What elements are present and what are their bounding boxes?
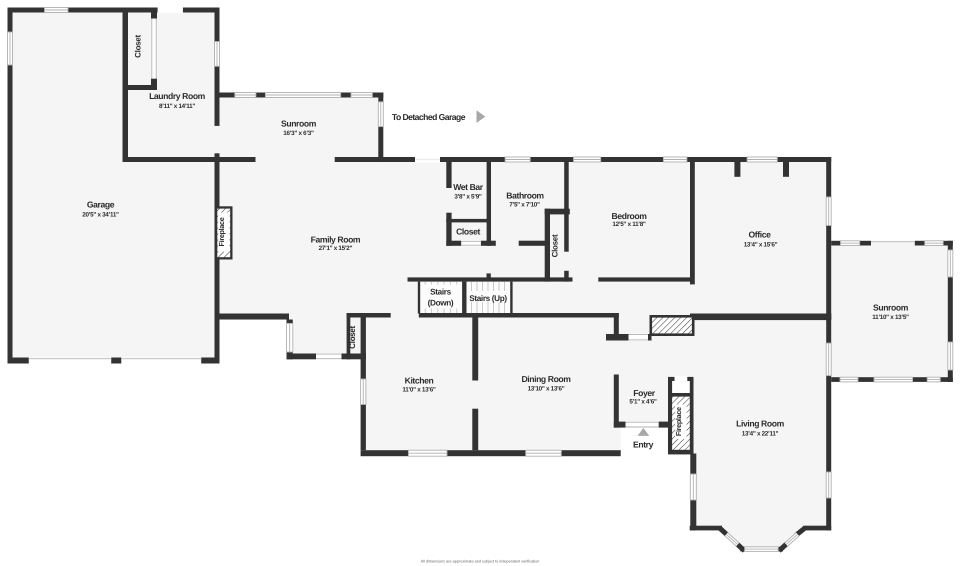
svg-text:13’4" x 22’11": 13’4" x 22’11"	[742, 430, 779, 437]
svg-text:Closet: Closet	[551, 234, 560, 257]
svg-text:5’1" x 4’6": 5’1" x 4’6"	[629, 399, 656, 406]
svg-text:8’11" x 14’11": 8’11" x 14’11"	[159, 103, 195, 110]
svg-text:13’4" x 15’6": 13’4" x 15’6"	[744, 242, 778, 249]
svg-text:Closet: Closet	[456, 227, 480, 237]
svg-text:Laundry Room: Laundry Room	[149, 91, 206, 101]
svg-text:To Detached Garage: To Detached Garage	[392, 112, 466, 122]
svg-text:Kitchen: Kitchen	[405, 375, 434, 385]
svg-text:Office: Office	[749, 229, 772, 239]
svg-text:13’10" x 13’6": 13’10" x 13’6"	[528, 385, 565, 392]
svg-text:(Down): (Down)	[428, 298, 454, 307]
svg-text:27’1" x 15’2": 27’1" x 15’2"	[319, 245, 353, 252]
svg-text:Wet Bar: Wet Bar	[453, 182, 484, 192]
svg-text:11’10" x 13’5": 11’10" x 13’5"	[872, 314, 909, 321]
svg-text:16’3" x 6’3": 16’3" x 6’3"	[283, 130, 314, 137]
svg-text:Living Room: Living Room	[736, 418, 784, 428]
svg-text:Fireplace: Fireplace	[217, 217, 226, 246]
svg-text:Dining Room: Dining Room	[521, 374, 571, 384]
svg-text:Fireplace: Fireplace	[674, 407, 683, 436]
svg-text:Closet: Closet	[348, 326, 357, 349]
svg-text:Foyer: Foyer	[633, 388, 655, 398]
svg-text:Stairs: Stairs	[430, 288, 451, 297]
svg-text:All dimensions are approximate: All dimensions are approximate and subje…	[421, 559, 540, 563]
svg-text:Bedroom: Bedroom	[612, 211, 648, 221]
svg-text:Family Room: Family Room	[311, 234, 361, 244]
svg-text:12’5" x 11’8": 12’5" x 11’8"	[612, 221, 646, 228]
svg-text:3’8" x 5’9": 3’8" x 5’9"	[454, 193, 481, 200]
svg-text:Stairs (Up): Stairs (Up)	[469, 294, 507, 303]
svg-text:20’5" x 34’11": 20’5" x 34’11"	[82, 212, 119, 219]
svg-text:Sunroom: Sunroom	[873, 302, 909, 312]
svg-text:Sunroom: Sunroom	[281, 118, 317, 128]
svg-text:Entry: Entry	[633, 439, 654, 449]
svg-text:11’0" x 13’6": 11’0" x 13’6"	[402, 387, 436, 394]
svg-text:7’5" x 7’10": 7’5" x 7’10"	[509, 202, 540, 209]
svg-text:Closet: Closet	[133, 35, 142, 58]
svg-text:Garage: Garage	[87, 199, 115, 209]
svg-text:Bathroom: Bathroom	[506, 190, 544, 200]
